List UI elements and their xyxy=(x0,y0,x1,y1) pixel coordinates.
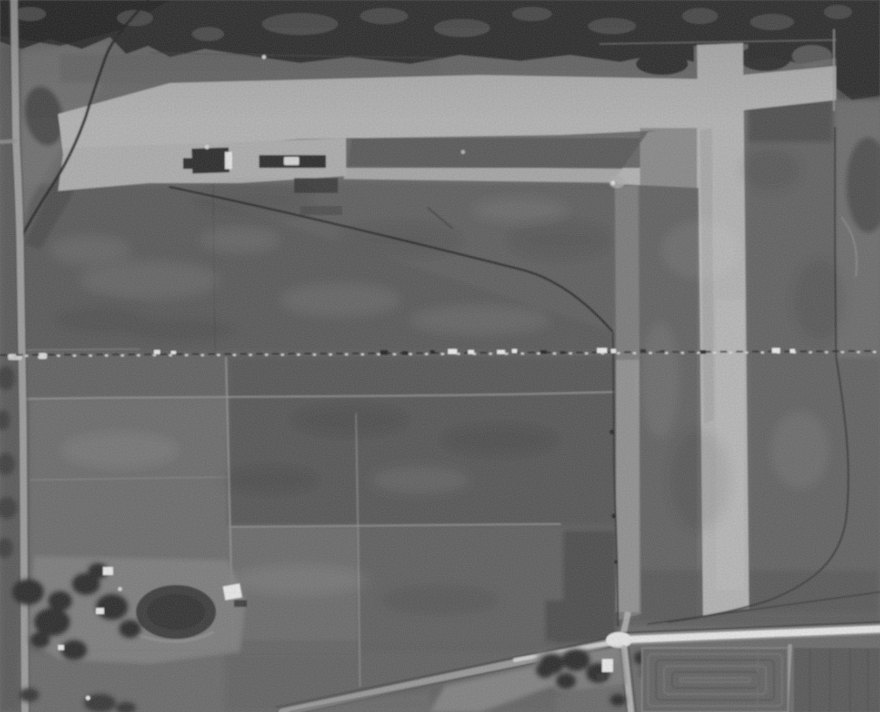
aerial-photo-canvas xyxy=(0,0,880,712)
film-grain-dark xyxy=(0,0,880,712)
aerial-photo xyxy=(0,0,880,712)
